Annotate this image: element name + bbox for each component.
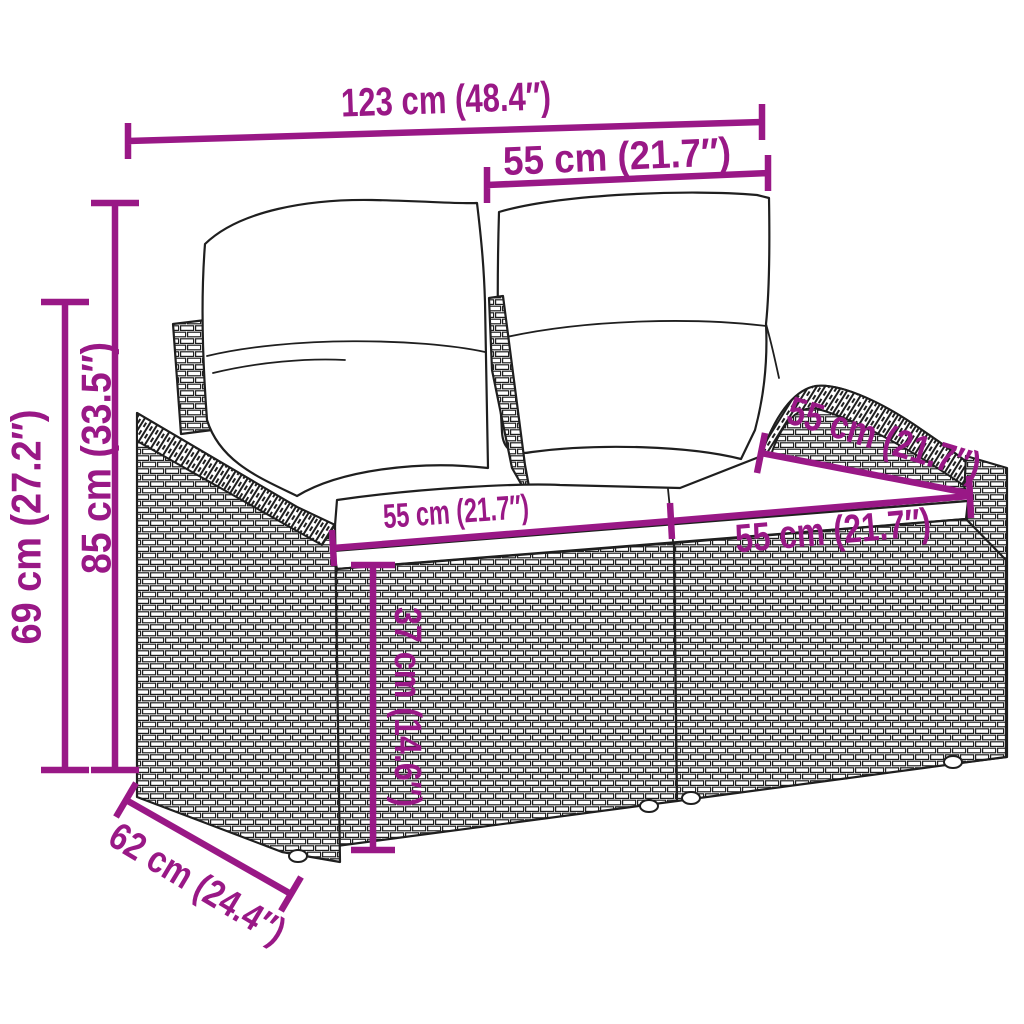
- dimension-label-overall-height: 85 cm (33.5″): [73, 342, 120, 574]
- dimension-overall-height: 85 cm (33.5″): [73, 203, 140, 770]
- dimension-label-seat-height: 37 cm (14.6″): [386, 607, 428, 807]
- dimension-label-overall-width: 123 cm (48.4″): [340, 74, 551, 125]
- product-dimension-diagram: 123 cm (48.4″) 55 cm (21.7″) 85 cm (33.5…: [0, 0, 1024, 1024]
- sofa-foot: [289, 850, 307, 862]
- sofa-foot: [682, 792, 700, 804]
- back-cushion-right-fold: [766, 324, 779, 378]
- dimension-label-armrest-height: 69 cm (27.2″): [3, 410, 50, 645]
- sofa-foot: [640, 800, 658, 812]
- sofa-foot: [944, 756, 962, 768]
- diagram-canvas: 123 cm (48.4″) 55 cm (21.7″) 85 cm (33.5…: [0, 0, 1024, 1024]
- seat-base-left-front: [291, 543, 677, 852]
- back-cushion-right: [498, 193, 770, 459]
